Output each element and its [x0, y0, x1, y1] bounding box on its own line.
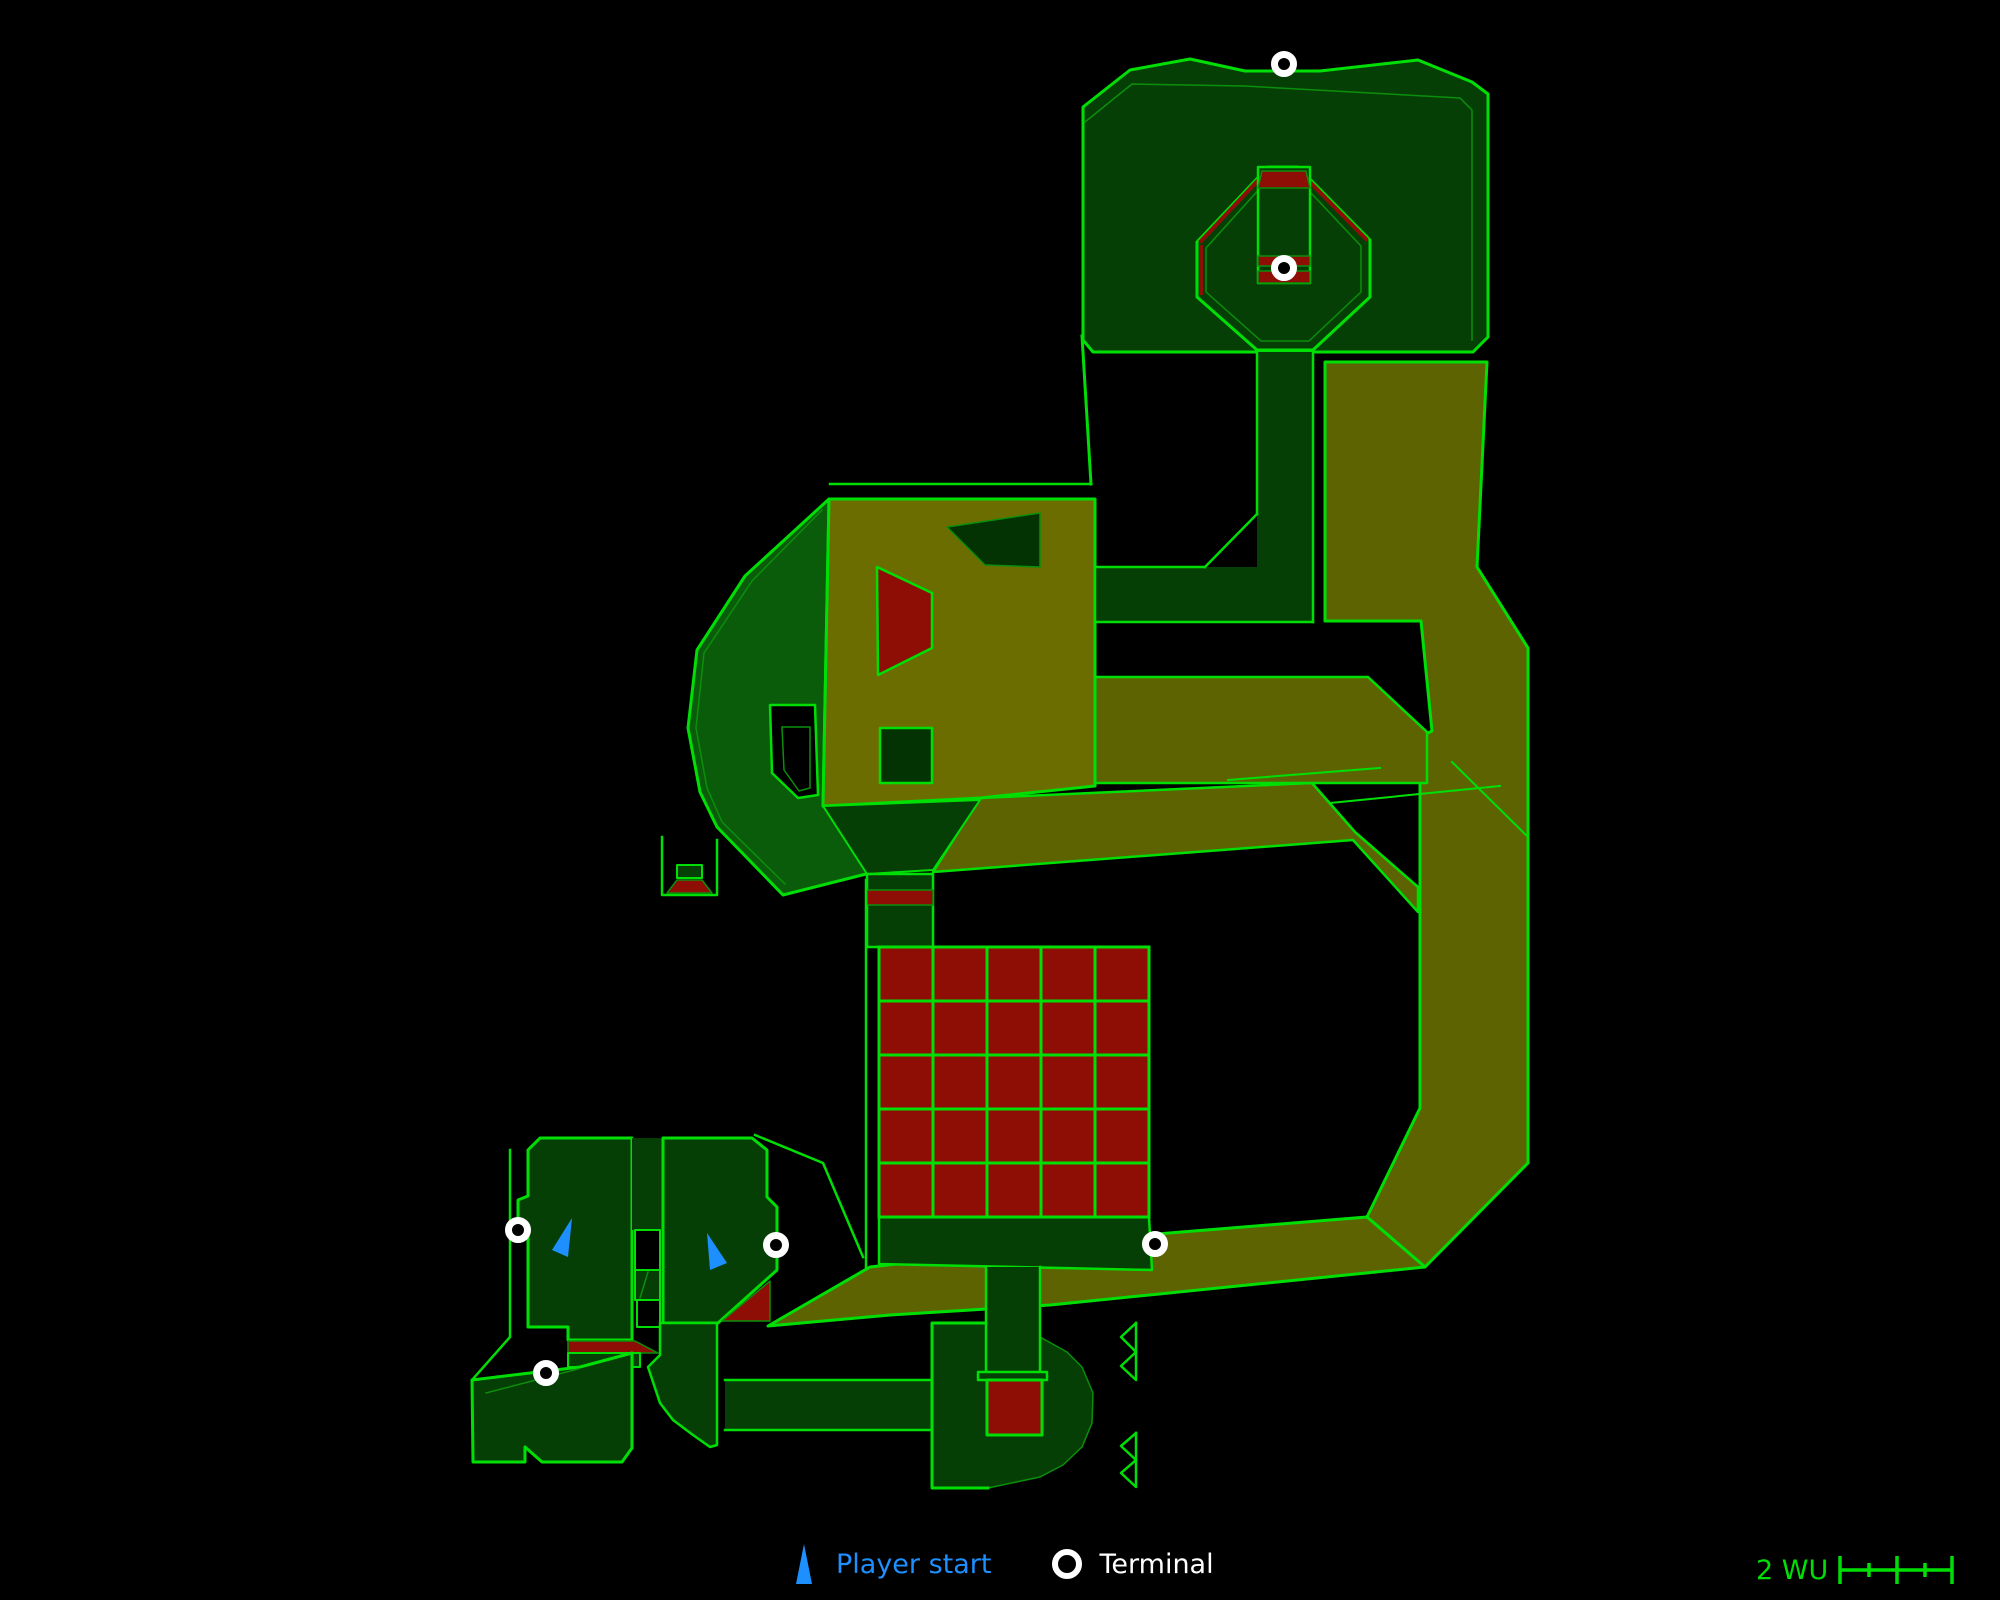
grid-cell: [1041, 1109, 1095, 1163]
west-outer-wall: [472, 1150, 510, 1380]
terminal-icon: [1052, 1549, 1082, 1579]
scale-bar: 2 WU: [1756, 1552, 1956, 1588]
ledge-marker-1a: [1121, 1323, 1136, 1352]
grid-cell: [933, 1109, 987, 1163]
east-corridor-fill: [1095, 677, 1427, 783]
grid-cell: [933, 1163, 987, 1217]
mid-vert-corridor-fill: [986, 1267, 1040, 1377]
south-shaft-red: [867, 890, 933, 905]
grid-cell: [1041, 1055, 1095, 1109]
grid-cell: [879, 1001, 933, 1055]
pipe-bend: [648, 1323, 717, 1447]
big-olive-room: [823, 499, 1095, 806]
scale-ruler-icon: [1836, 1552, 1956, 1588]
terminal-marker: [767, 1236, 786, 1255]
ledge-marker-1b: [1121, 1352, 1136, 1380]
left-room: [518, 1138, 632, 1340]
grid-cell: [1095, 947, 1149, 1001]
grid-cell: [987, 1163, 1041, 1217]
neck-diag-wall: [1205, 514, 1257, 567]
grid-bottom-strip: [879, 1217, 1152, 1270]
divider-gap2: [637, 1300, 660, 1327]
shaft-red-top: [1258, 171, 1310, 188]
left-red-band: [568, 1341, 658, 1353]
ledge-marker-2b: [1121, 1460, 1136, 1487]
grid-cell: [879, 1055, 933, 1109]
south-shaft: [867, 874, 933, 947]
terminal-marker: [1146, 1235, 1165, 1254]
grid-cell: [987, 947, 1041, 1001]
grid-cell: [1095, 1001, 1149, 1055]
grid-cell: [879, 947, 933, 1001]
legend-player-start-label: Player start: [836, 1549, 992, 1580]
bottom-red-square: [987, 1380, 1042, 1435]
grid-cell: [1041, 947, 1095, 1001]
plug-box: [677, 865, 702, 878]
leg-slant-wall: [1082, 336, 1091, 484]
grid-cell: [987, 1109, 1041, 1163]
grid-cell: [1041, 1001, 1095, 1055]
grid-cell: [879, 1163, 933, 1217]
right-corridor: [1325, 362, 1528, 1267]
grid-cell: [1041, 1163, 1095, 1217]
legend-terminal-label: Terminal: [1100, 1549, 1214, 1580]
terminal-marker: [537, 1364, 556, 1383]
grid-cell: [933, 1001, 987, 1055]
grid-cell: [933, 1055, 987, 1109]
player-start-icon: [792, 1544, 816, 1584]
grid-cell: [987, 1055, 1041, 1109]
legend-terminal: Terminal: [1052, 1549, 1214, 1580]
terminal-marker: [1275, 259, 1294, 278]
divider-top: [632, 1138, 663, 1230]
grid-cell: [987, 1001, 1041, 1055]
map-viewer: { "colors": { "background": "#000000", "…: [0, 0, 2000, 1600]
ledge-marker-2a: [1121, 1433, 1136, 1460]
grid-cell: [879, 1109, 933, 1163]
grid-cell: [933, 947, 987, 1001]
map-canvas: [0, 0, 2000, 1600]
legend: Player start Terminal: [792, 1544, 1214, 1584]
scale-bar-label: 2 WU: [1756, 1555, 1828, 1586]
grid-cell: [1095, 1109, 1149, 1163]
cross-strip-fill: [1095, 567, 1313, 622]
grid-cell: [1095, 1163, 1149, 1217]
legend-player-start: Player start: [792, 1544, 992, 1584]
divider-gap1: [635, 1230, 660, 1270]
room-dark-square: [880, 728, 932, 783]
terminal-marker: [1275, 55, 1294, 74]
terminal-marker: [509, 1221, 528, 1240]
plug-red: [667, 880, 712, 893]
grid-cell: [1095, 1055, 1149, 1109]
south-corridor-fill: [725, 1380, 932, 1430]
